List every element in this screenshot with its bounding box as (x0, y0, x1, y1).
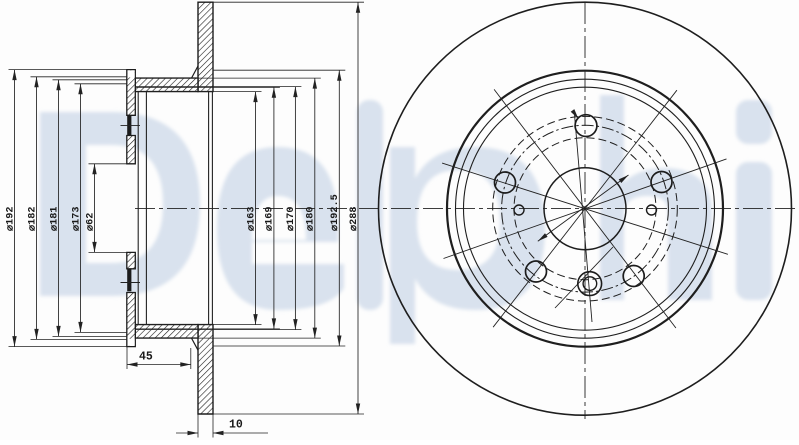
svg-text:⌀192: ⌀192 (5, 207, 16, 231)
svg-text:⌀181: ⌀181 (49, 207, 60, 231)
svg-text:⌀169: ⌀169 (265, 207, 276, 231)
svg-text:⌀192.5: ⌀192.5 (330, 194, 341, 231)
svg-text:⌀182: ⌀182 (27, 207, 38, 231)
svg-text:⌀173: ⌀173 (71, 207, 82, 231)
svg-text:45: 45 (139, 351, 153, 364)
svg-text:⌀163: ⌀163 (246, 207, 257, 231)
svg-text:⌀180: ⌀180 (306, 207, 317, 231)
svg-text:⌀170: ⌀170 (286, 207, 297, 231)
svg-text:10: 10 (229, 419, 243, 432)
svg-text:⌀288: ⌀288 (349, 207, 360, 231)
svg-text:⌀62: ⌀62 (85, 213, 96, 231)
